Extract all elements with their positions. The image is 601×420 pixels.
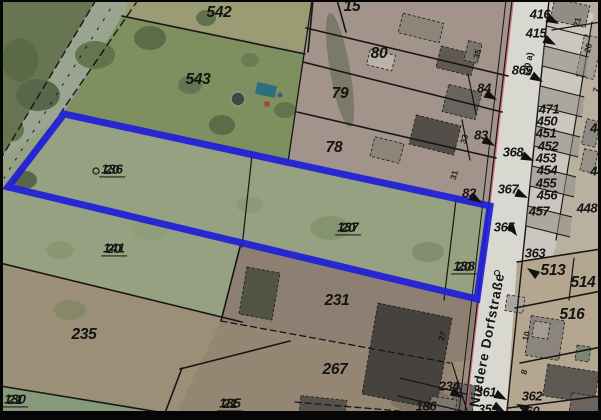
point-label-448: 448 xyxy=(577,201,598,216)
point-label-368: 368 xyxy=(503,145,524,160)
parcel-label-516: 516 xyxy=(560,306,585,324)
point-label-471: 471 xyxy=(539,102,560,117)
fraction-denominator: 21 xyxy=(8,393,22,407)
point-label-83: 83 xyxy=(474,128,488,143)
parcel-label-543: 543 xyxy=(186,71,211,89)
point-label-362: 362 xyxy=(522,389,543,404)
house-number-21: 21 xyxy=(571,16,583,28)
house-number-33: 33 xyxy=(458,133,470,145)
fraction-denominator: 20 xyxy=(457,260,471,274)
point-label-367: 367 xyxy=(498,182,519,197)
point-label-82: 82 xyxy=(462,186,476,201)
fraction-denominator: 20 xyxy=(105,163,119,177)
parcel-label-78: 78 xyxy=(326,139,343,157)
parcel-label-80: 80 xyxy=(371,45,388,63)
point-label-361: 361 xyxy=(476,385,497,400)
point-label-84: 84 xyxy=(477,81,491,96)
map-frame-top xyxy=(0,0,601,2)
point-label-234: 234 xyxy=(439,379,460,394)
point-label-363: 363 xyxy=(525,246,546,261)
parcel-label-231: 231 xyxy=(325,292,350,310)
parcel-label-79: 79 xyxy=(332,85,349,103)
fraction-denominator: 21 xyxy=(223,397,237,411)
fraction-denominator: 20 xyxy=(107,242,121,256)
house-number-8: 8 xyxy=(519,368,530,375)
parcel-label-542: 542 xyxy=(207,4,232,22)
house-number-27: 27 xyxy=(436,330,448,342)
fraction-denominator: 20 xyxy=(341,221,355,235)
parcel-label-15: 15 xyxy=(344,0,361,16)
map-frame-bottom xyxy=(0,411,601,420)
parcel-label-513: 513 xyxy=(541,262,566,280)
point-label-365: 365 xyxy=(494,220,515,235)
point-label-869: 869 xyxy=(512,63,533,78)
point-label-456: 456 xyxy=(537,188,558,203)
point-label-457: 457 xyxy=(529,204,550,219)
map-canvas[interactable]: Niedere Dorfstraße (20 a) 15787980231235… xyxy=(0,0,601,420)
parcel-label-514: 514 xyxy=(571,274,596,292)
map-labels: Niedere Dorfstraße (20 a) 15787980231235… xyxy=(0,0,601,420)
map-frame-left xyxy=(0,0,3,420)
parcel-label-267: 267 xyxy=(323,361,348,379)
house-number-31: 31 xyxy=(448,169,460,181)
point-label-415: 415 xyxy=(526,26,547,41)
house-number-20: 20 xyxy=(582,42,594,54)
point-label-416: 416 xyxy=(530,7,551,22)
parcel-label-235: 235 xyxy=(72,326,97,344)
house-number-10: 10 xyxy=(520,330,532,342)
house-number-35: 35 xyxy=(471,48,483,60)
